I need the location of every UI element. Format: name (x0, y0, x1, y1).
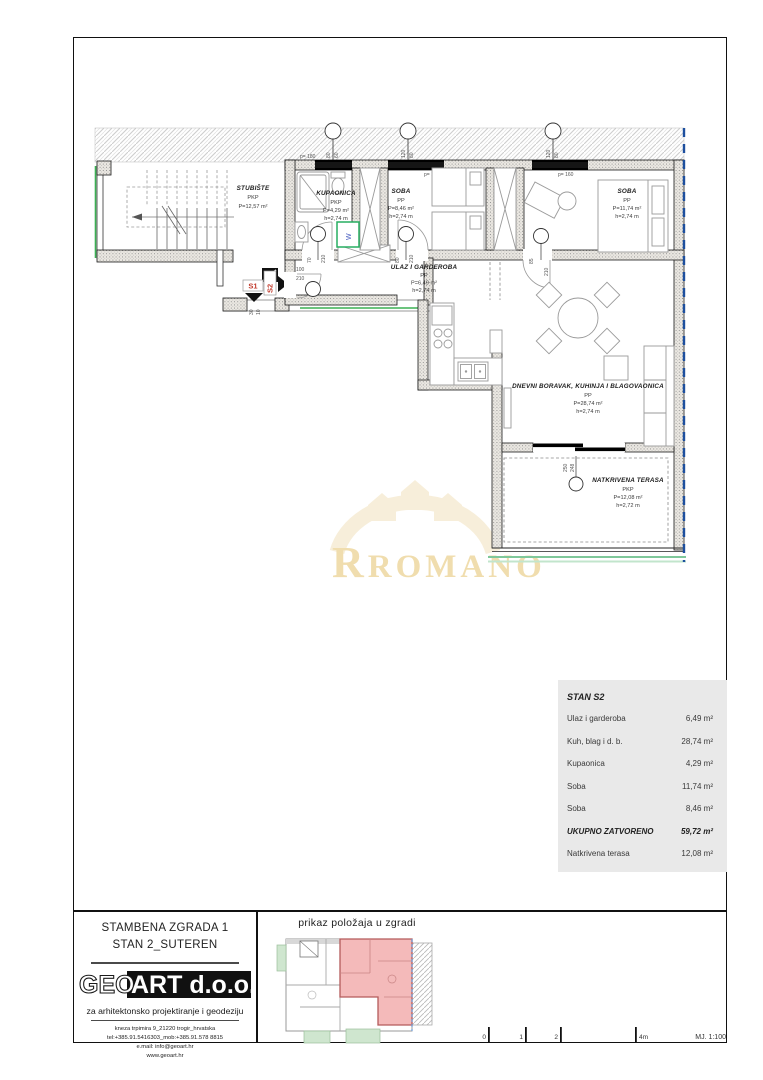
room-cat: PP (397, 198, 405, 204)
room-area: P=8,46 m² (388, 206, 414, 212)
room-cat: PKP (247, 195, 258, 201)
sofa-icon (644, 346, 674, 446)
existing-building-hatch (95, 128, 684, 162)
scale-tick-label: 4m (639, 1034, 648, 1041)
room-cat: PKP (330, 200, 341, 206)
room-name: SOBA (618, 188, 637, 195)
door-height: 210 (409, 254, 415, 263)
row-label: Soba (567, 804, 586, 813)
room-height: h=2,74 m (615, 214, 639, 220)
room-name: KUPAONICA (316, 190, 356, 197)
toilet-icon (331, 172, 345, 178)
door-height: 210 (296, 276, 305, 282)
floor-plan-sheet: { "plan": { "rooms": [ {"name": "STUBIŠT… (0, 0, 763, 1080)
window-height: 80 (409, 152, 415, 158)
minimap-terrace-green (277, 945, 286, 971)
room-label-soba-1: SOBA PP P=8,46 m² h=2,74 m (388, 188, 414, 220)
washing-machine-icon: W (337, 222, 359, 247)
room-label-stubiste: STUBIŠTE PKP P=12,57 m² (237, 183, 270, 210)
door-width: 70 (307, 257, 313, 263)
room-area: P=4,29 m² (323, 208, 349, 214)
washer-label: W (346, 233, 353, 240)
door-width: 250 (563, 463, 569, 472)
door-width: 85 (529, 258, 535, 264)
room-height: h=2,74 m (389, 214, 413, 220)
s1-label: S1 (248, 282, 257, 291)
watermark-word: ROMANO (368, 549, 546, 585)
room-area: P=28,74 m² (573, 401, 602, 407)
scale-ratio-label: MJ. 1:100 (695, 1034, 726, 1041)
row-value: 28,74 m² (681, 737, 713, 746)
room-cat: PP (584, 393, 592, 399)
minimap-terrace-green (346, 1029, 380, 1043)
door-soba-2: 85 210 (523, 229, 552, 289)
room-name: NATKRIVENA TERASA (592, 477, 664, 484)
door-height: 248 (570, 463, 576, 472)
company-web: www.geoart.hr (75, 1052, 255, 1061)
scale-tick-label: 0 (482, 1034, 486, 1041)
room-label-terasa: NATKRIVENA TERASA PKP P=12,08 m² h=2,72 … (592, 477, 664, 509)
room-label-dnevni: DNEVNI BORAVAK, KUHINJA I BLAGOVAONICA P… (512, 383, 664, 415)
window-dim-circle (545, 123, 561, 139)
room-height: h=2,74 m (324, 216, 348, 222)
minimap-title: prikaz položaja u zgradi (262, 917, 452, 929)
logo-geo-text: GEO (79, 971, 135, 999)
table-row-total: UKUPNO ZATVORENO 59,72 m² (567, 827, 713, 836)
row-label: Soba (567, 782, 586, 791)
window-width: 120 (401, 149, 407, 158)
table-row: Soba 8,46 m² (567, 804, 713, 813)
window-dim-circle (400, 123, 416, 139)
single-bed-icon (432, 168, 484, 206)
row-label: Ulaz i garderoba (567, 714, 626, 723)
table-row: Natkrivena terasa 12,08 m² (567, 849, 713, 858)
room-area: P=11,74 m² (613, 206, 642, 212)
floor-plan-drawing: RROMANO STUBIŠTE PKP P=12,57 m² (0, 0, 763, 640)
company-phone: tel:+385.91.5416303_mob:+385.91.578 8815 (75, 1034, 255, 1043)
minimap-existing-hatch (412, 943, 432, 1025)
table-row: Kupaonica 4,29 m² (567, 759, 713, 768)
wardrobe-icon (360, 168, 380, 250)
table-row: Soba 11,74 m² (567, 782, 713, 791)
kitchen-counter (430, 303, 502, 385)
sink-icon (295, 222, 308, 242)
entry-dim-b: 10 (256, 309, 262, 315)
window-dim-circle (325, 123, 341, 139)
row-value: 59,72 m² (681, 827, 713, 836)
s2-label: S2 (266, 284, 275, 293)
room-name: DNEVNI BORAVAK, KUHINJA I BLAGOVAONICA (512, 383, 664, 390)
romano-watermark: RROMANO (332, 480, 546, 587)
room-height: h=2,72 m (616, 503, 640, 509)
table-row: Ulaz i garderoba 6,49 m² (567, 714, 713, 723)
row-label: Kuh, blag i d. b. (567, 737, 623, 746)
area-table-title: STAN S2 (567, 692, 713, 702)
side-table-icon (604, 356, 628, 380)
parapet-label: p= 180 (300, 154, 316, 160)
project-title-line1: STAMBENA ZGRADA 1 (75, 920, 255, 937)
geoart-logo: GEO ART d.o.o. (77, 969, 253, 1000)
row-label: UKUPNO ZATVORENO (567, 827, 654, 836)
row-value: 8,46 m² (686, 804, 713, 813)
room-cat: PP (623, 198, 631, 204)
row-label: Natkrivena terasa (567, 849, 630, 858)
room-height: h=2,74 m (412, 288, 436, 294)
title-strip-divider (256, 911, 258, 1042)
single-bed-icon (432, 212, 484, 250)
room-name: ULAZ I GARDEROBA (391, 264, 458, 271)
window-width: 120 (546, 149, 552, 158)
door-width: 80 (395, 257, 401, 263)
row-value: 12,08 m² (681, 849, 713, 858)
entry-dim-a: 30 (249, 309, 255, 315)
wardrobe-icon (494, 168, 516, 250)
company-email: e.mail: info@geoart.hr (75, 1043, 255, 1052)
project-title-line2: STAN 2_SUTEREN (75, 937, 255, 954)
room-cat: PKP (622, 487, 633, 493)
door-height: 210 (321, 254, 327, 263)
door-width: 100 (296, 267, 305, 273)
company-tagline: za arhitektonsko projektiranje i geodezi… (75, 1006, 255, 1016)
door-height: 210 (544, 267, 550, 276)
minimap-terrace-green (304, 1031, 330, 1043)
chair-icon (558, 192, 576, 210)
room-area: P=6,49 m² (411, 281, 437, 287)
room-height: h=2,74 m (576, 409, 600, 415)
scale-bar: 0 1 2 4m MJ. 1:100 (455, 1024, 740, 1048)
s1-direction-arrow (245, 293, 263, 302)
scale-tick-label: 2 (554, 1034, 558, 1041)
dining-table-icon (536, 282, 619, 353)
terrace-area (488, 458, 686, 562)
room-name: STUBIŠTE (237, 183, 270, 192)
building-position-panel: prikaz položaja u zgradi (262, 911, 452, 1042)
tv-board-icon (504, 388, 511, 428)
scale-tick-label: 1 (519, 1034, 523, 1041)
title-block: STAMBENA ZGRADA 1 STAN 2_SUTEREN GEO ART… (75, 911, 255, 1042)
window-width: 80 (326, 152, 332, 158)
tall-cabinet-icon (490, 330, 502, 353)
area-table: STAN S2 Ulaz i garderoba 6,49 m² Kuh, bl… (558, 680, 727, 872)
divider-rule (91, 962, 239, 964)
logo-art-text: ART d.o.o. (131, 971, 253, 999)
row-value: 4,29 m² (686, 759, 713, 768)
table-row: Kuh, blag i d. b. 28,74 m² (567, 737, 713, 746)
row-label: Kupaonica (567, 759, 605, 768)
window-height: 80 (554, 152, 560, 158)
row-value: 11,74 m² (682, 782, 713, 791)
room-area: P=12,08 m² (613, 495, 642, 501)
stair-treads (127, 170, 234, 249)
window-height: 60 (334, 152, 340, 158)
room-cat: PP (420, 273, 428, 279)
row-value: 6,49 m² (686, 714, 713, 723)
room-area: P=12,57 m² (238, 204, 267, 210)
parapet-label: p= 160 (558, 172, 574, 178)
room-name: SOBA (392, 188, 411, 195)
minimap-drawing (274, 933, 440, 1045)
staircase-area: STUBIŠTE PKP P=12,57 m² (96, 161, 270, 262)
company-address: kneza trpimira 9_21220 trogir_hrvatska (75, 1025, 255, 1034)
divider-rule (91, 1020, 239, 1022)
door-soba-1: 80 210 (395, 220, 428, 263)
